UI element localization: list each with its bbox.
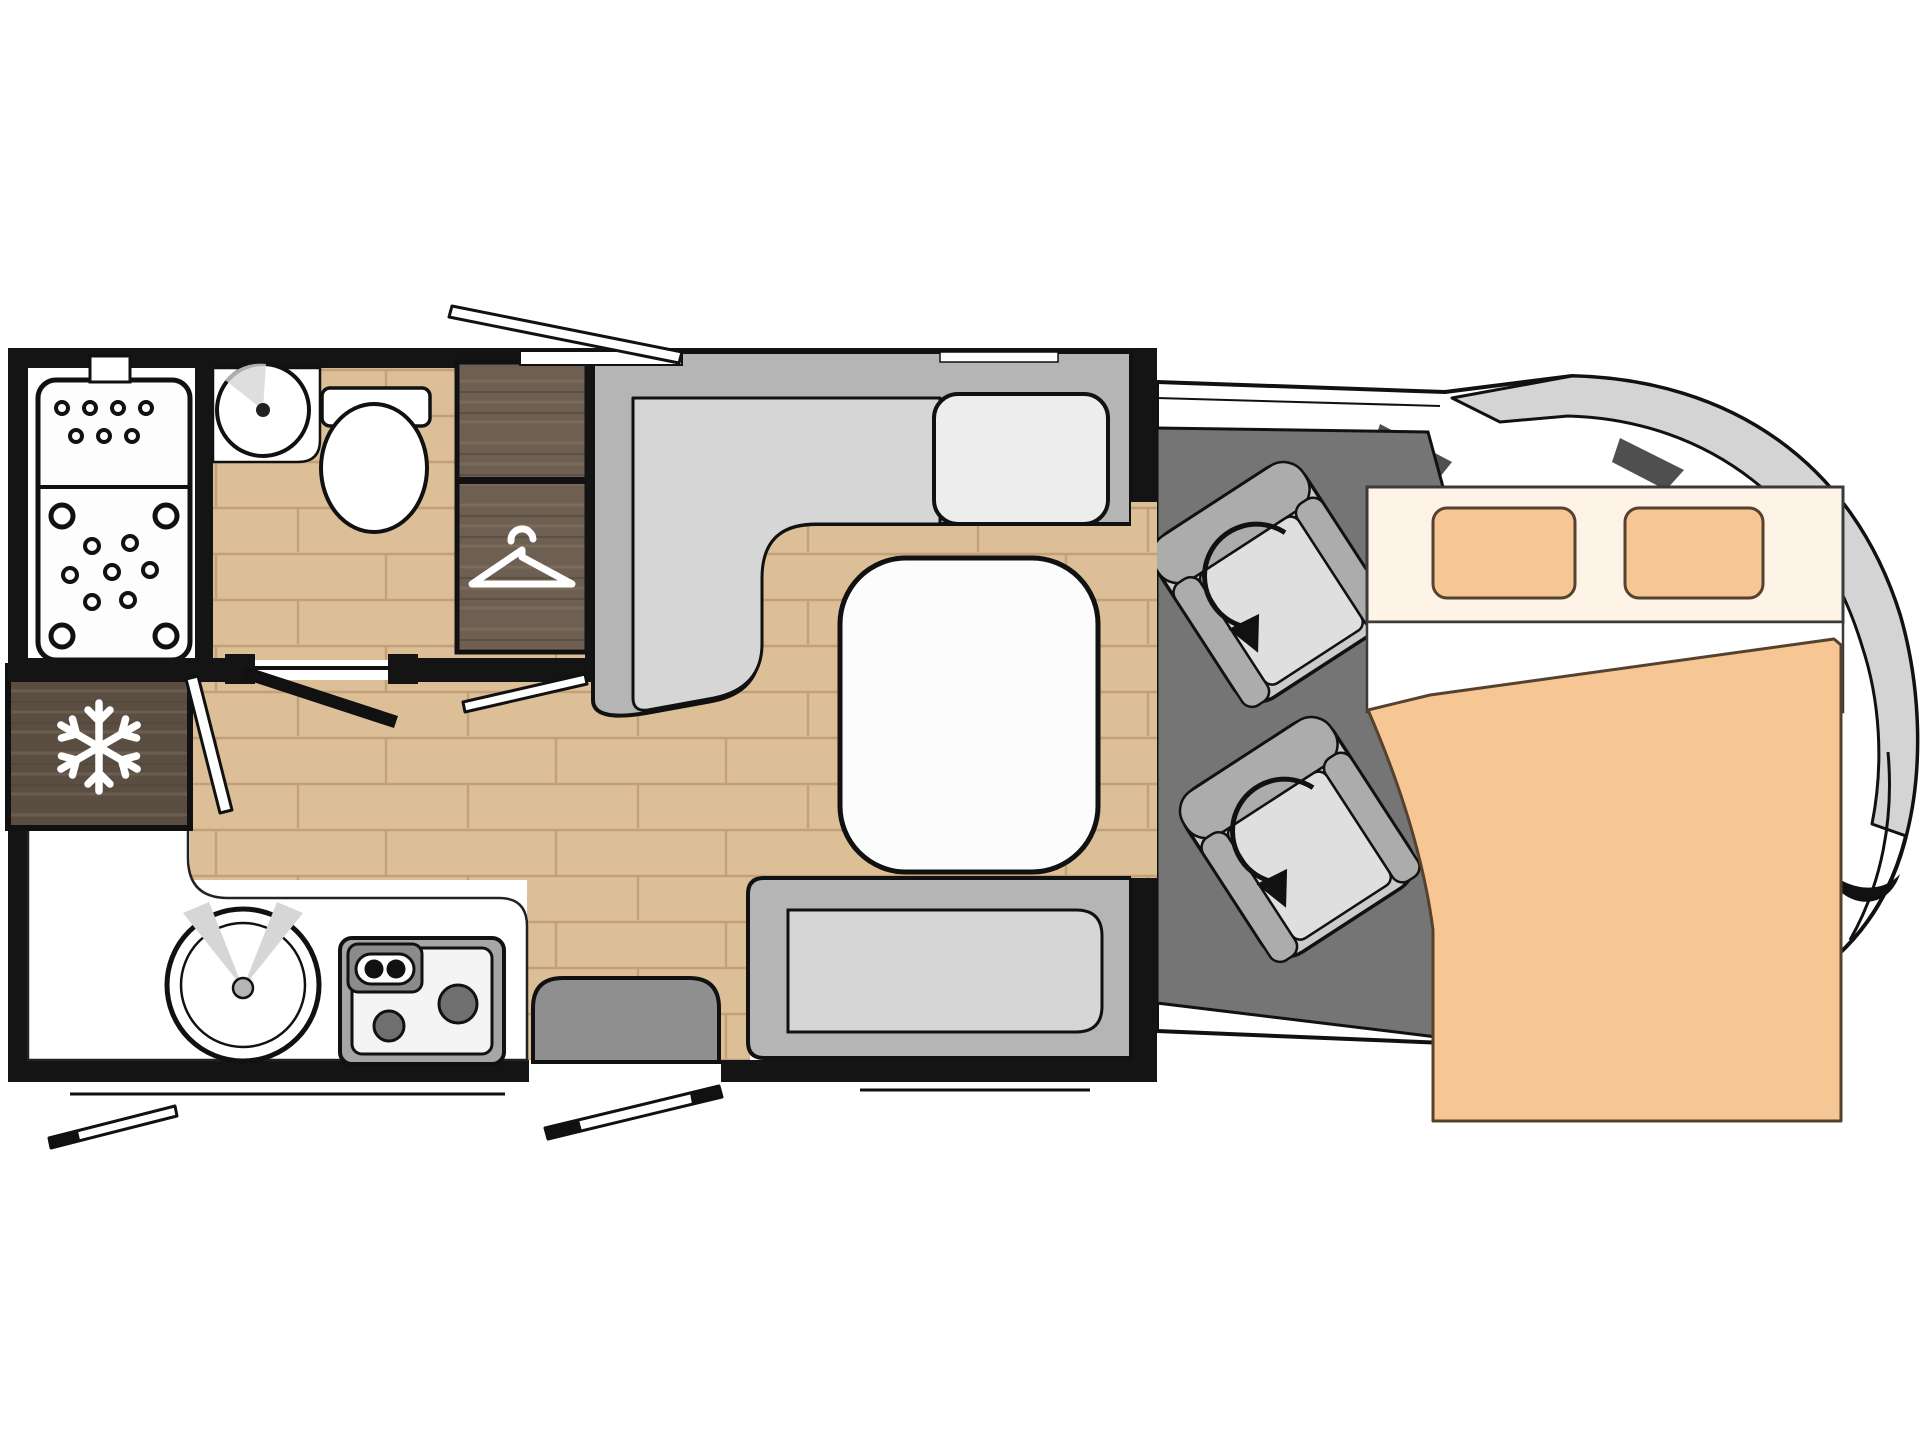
toilet-bowl xyxy=(321,404,427,532)
motorhome-floorplan xyxy=(0,0,1920,1440)
shower-head-mount xyxy=(90,356,130,382)
bed-over-cab xyxy=(1367,487,1843,1121)
shower-wall xyxy=(195,368,213,660)
cab-passage xyxy=(1131,502,1157,878)
blanket xyxy=(1368,639,1841,1121)
entry-door xyxy=(545,1086,722,1139)
bench-seat xyxy=(748,878,1131,1058)
toilet xyxy=(321,388,430,532)
exterior-hatch-door xyxy=(49,1106,177,1148)
stove-knob xyxy=(365,960,384,979)
stove xyxy=(340,938,504,1064)
stove-burner xyxy=(439,985,477,1023)
door-opening-line xyxy=(253,666,390,670)
pillow xyxy=(1625,508,1763,598)
basin-drain xyxy=(256,403,270,417)
bench-cushion xyxy=(788,910,1102,1032)
wardrobe-shelf-line xyxy=(457,477,587,484)
sink-drain xyxy=(233,978,253,998)
entry-step xyxy=(533,978,719,1062)
sofa-cushion xyxy=(934,394,1108,524)
door-post xyxy=(388,654,418,684)
washbasin xyxy=(213,364,320,462)
wardrobe xyxy=(457,362,587,652)
fridge xyxy=(8,666,190,828)
pillow xyxy=(1433,508,1575,598)
floorplan-page xyxy=(0,0,1920,1440)
dinette-table xyxy=(840,558,1098,872)
shower xyxy=(38,356,213,660)
stove-burner xyxy=(374,1011,404,1041)
living-module xyxy=(8,348,1157,1094)
window-opening xyxy=(940,352,1058,362)
stove-knob xyxy=(387,960,406,979)
shower-tray xyxy=(38,380,190,660)
